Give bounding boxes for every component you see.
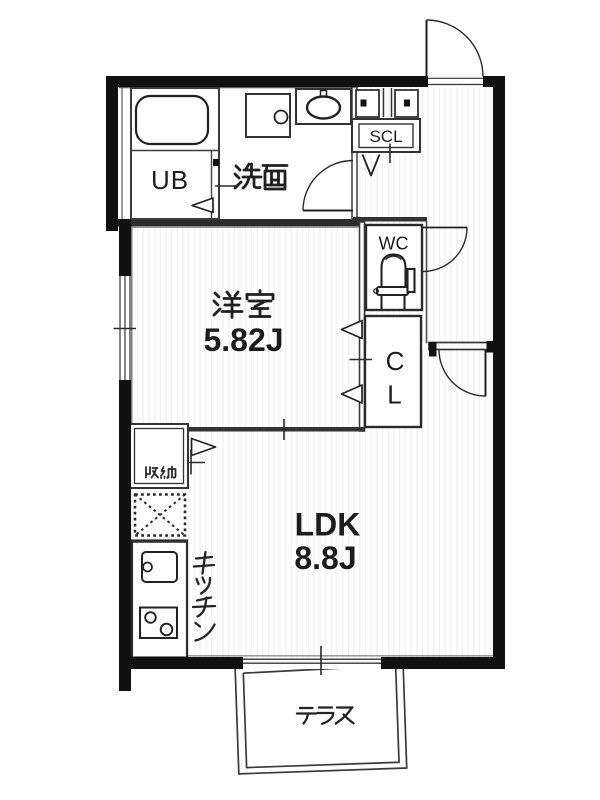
- svg-text:L: L: [387, 380, 401, 410]
- svg-text:LDK: LDK: [295, 507, 361, 543]
- svg-text:5.82J: 5.82J: [203, 322, 283, 358]
- svg-text:UB: UB: [151, 165, 189, 195]
- svg-text:8.8J: 8.8J: [294, 540, 356, 576]
- svg-text:C: C: [386, 346, 405, 376]
- svg-text:WC: WC: [379, 234, 409, 254]
- svg-text:SCL: SCL: [369, 127, 402, 146]
